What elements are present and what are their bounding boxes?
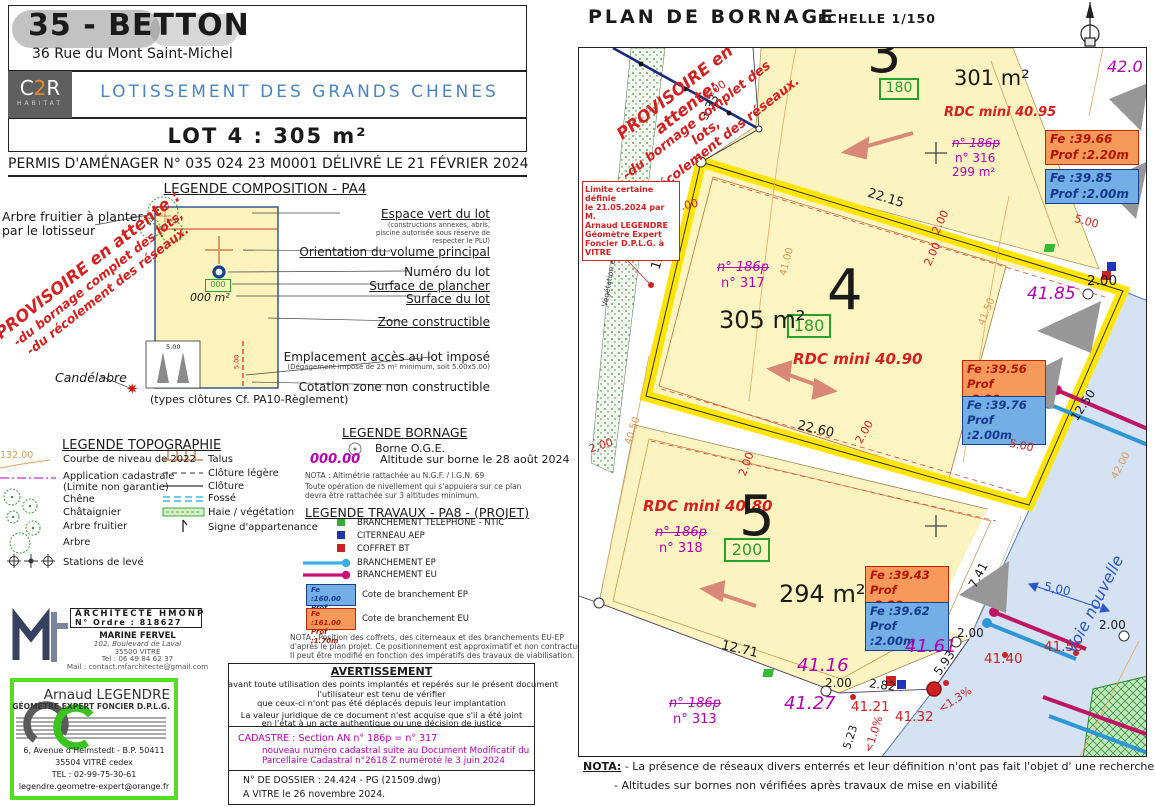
- travaux-aep: CITERNEAU AEP: [357, 531, 425, 541]
- city-title: 35 - BETTON: [28, 8, 250, 43]
- c2r-logo-2: 2: [34, 76, 47, 100]
- travaux-ep: BRANCHEMENT EP: [357, 558, 436, 568]
- fe-box-1-eu: Fe :39.66Prof :2.20m: [1045, 130, 1139, 165]
- alt-red-41-40: 41.40: [984, 652, 1023, 668]
- topo-cloture-legere: Clôture légère: [208, 468, 279, 480]
- c2r-logo-r: R: [46, 76, 60, 100]
- acces-dim-b: 5.00: [233, 355, 241, 369]
- limite-l2: le 21.05.2024 par M.: [585, 203, 677, 221]
- fe1-ep-l2: Prof :2.00m: [1050, 187, 1134, 203]
- lot5-new-parcel: n° 318: [659, 541, 703, 556]
- topo-signe: Signe d'appartenance: [208, 522, 318, 534]
- fe2-ep-l2: Prof :2.00m: [967, 413, 1041, 443]
- dim-200-borne-a: 2.00: [1087, 274, 1117, 290]
- topo-arbre-fruitier: Arbre fruitier: [63, 521, 127, 533]
- dim-200-borne-c: 2.00: [1099, 618, 1126, 632]
- lot4-old-parcel: n° 186p: [717, 260, 769, 275]
- cadastre-l2: nouveau numéro cadastral suite au Docume…: [262, 746, 529, 756]
- fe1-eu-l1: Fe :39.66: [1050, 132, 1134, 148]
- acces-dim-a: 5.00: [166, 344, 180, 352]
- travaux-eu: BRANCHEMENT EU: [357, 570, 437, 580]
- legend-numero: Numéro du lot: [404, 265, 490, 279]
- limite-l3: Arnaud LEGENDRE: [585, 221, 677, 230]
- plan-nota-1: - La présence de réseaux divers enterrés…: [625, 760, 1155, 773]
- limite-l4: Géomètre Expert: [585, 230, 677, 239]
- warning-title: AVERTISSEMENT: [228, 666, 535, 679]
- lot4-rdc: RDC mini 40.90: [793, 351, 923, 369]
- surveyor-mail: legendre.geometre-expert@orange.fr: [14, 782, 174, 791]
- lot4-number: 4: [827, 258, 863, 324]
- travaux-ntic: BRANCHEMENT TELEPHONE - NTIC: [357, 518, 504, 528]
- fe2-ep-l1: Fe :39.76: [967, 398, 1041, 413]
- fe3-eu-l1: Fe :39.43: [870, 568, 944, 583]
- surveyor-tel: TEL : 02-99-75-30-61: [14, 770, 174, 779]
- travaux-nota-3: Il peut être modifié en fonction des imp…: [290, 652, 574, 661]
- p313-old: n° 186p: [669, 696, 721, 711]
- plan-scale: ECHELLE 1/150: [818, 12, 936, 27]
- topo-arbre: Arbre: [63, 537, 90, 549]
- travaux-bt: COFFRET BT: [357, 544, 410, 554]
- lot3-area: 301 m²: [954, 66, 1030, 91]
- cadastre-l3: Parcellaire Cadastral n°2618 Z numéroté …: [262, 756, 505, 766]
- permit-line: PERMIS D'AMÉNAGER N° 035 024 23 M0001 DÉ…: [8, 156, 527, 177]
- p313-new: n° 313: [673, 712, 717, 727]
- topo-talus: Talus: [208, 454, 233, 466]
- fe-legend-eu-l1: Fe :161.00: [311, 610, 351, 628]
- sample-surface: 000 m²: [190, 292, 230, 305]
- lot5-number: 5: [739, 484, 775, 550]
- legend-topo-title: LEGENDE TOPOGRAPHIE: [62, 438, 221, 453]
- legend-espace-vert: Espace vert du lot: [381, 207, 490, 221]
- architect-logo: [16, 612, 68, 662]
- fe-legend-ep-label: Cote de branchement EP: [362, 590, 468, 600]
- site-address: 36 Rue du Mont Saint-Michel: [32, 46, 233, 63]
- tree-label-2: par le lotisseur: [2, 224, 95, 239]
- fe1-eu-l2: Prof :2.20m: [1050, 148, 1134, 164]
- legend-espace-note-2: piscine autorisée sous réserve de: [376, 229, 490, 237]
- fe-box-2-ep: Fe :39.76Prof :2.00m: [962, 396, 1046, 445]
- warning-divider-2: [228, 770, 535, 771]
- cadastre-l1: CADASTRE : Section AN n° 186p = n° 317: [238, 733, 437, 744]
- plan-de-bornage-sheet: 35 - BETTON 36 Rue du Mont Saint-Michel …: [0, 0, 1155, 807]
- bornage-nota-1: NOTA : Altimétrie rattachée au N.G.F. / …: [305, 472, 484, 481]
- alt-red-41-21: 41.21: [851, 700, 890, 716]
- legend-orientation: Orientation du volume principal: [299, 245, 490, 259]
- legend-espace-note-3: respecter le PLU): [432, 237, 490, 245]
- fe-legend-ep-l1: Fe :160.00: [311, 586, 351, 604]
- lot-title: LOT 4 : 305 m²: [8, 124, 527, 149]
- dossier-l2: A VITRE le 26 novembre 2024.: [243, 790, 385, 801]
- alt-41-85: 41.85: [1027, 284, 1076, 304]
- legend-espace-note-1: (constructions annexes, abris,: [388, 221, 490, 229]
- limite-l5: Foncier D.P.L.G. à: [585, 239, 677, 248]
- dim-200-borne-b: 2.00: [957, 626, 984, 640]
- lot5-area: 294 m²: [779, 580, 865, 608]
- topo-chataignier: Châtaignier: [63, 507, 121, 519]
- legend-zone-constructible: Zone constructible: [378, 315, 490, 329]
- warning-l3: que ceux-ci n'ont pas été déplacés depui…: [228, 699, 535, 709]
- topo-chene: Chêne: [63, 494, 95, 506]
- c2r-logo: C2R HABITAT: [8, 71, 72, 118]
- contour-sample: 132.00: [0, 450, 33, 461]
- lot4-area: 305 m²: [719, 306, 805, 334]
- alt-41-27: 41.27: [784, 693, 836, 714]
- limite-certaine-box: Limite certaine définie le 21.05.2024 pa…: [582, 181, 680, 261]
- lot5-old-parcel: n° 186p: [655, 525, 707, 540]
- dim-200-borne-d: 2.00: [825, 676, 852, 690]
- dossier-l1: N° DE DOSSIER : 24.424 - PG (21509.dwg): [243, 776, 441, 787]
- lot3-new-area: 299 m²: [952, 165, 995, 179]
- limite-l6: VITRE: [585, 248, 677, 257]
- alt-sample: 000.00: [310, 452, 360, 467]
- lot4-new-parcel: n° 317: [721, 276, 765, 291]
- types-clotures: (types clôtures Cf. PA10-Règlement): [150, 394, 348, 407]
- topo-cloture: Clôture: [208, 481, 244, 493]
- lot3-new-parcel: n° 316: [955, 151, 995, 165]
- plan-drawing-area: 3 180 301 m² RDC mini 40.95 n° 186p n° 3…: [578, 47, 1147, 757]
- topo-courbe: Courbe de niveau de 2022: [63, 454, 196, 466]
- alt-42-0: 42.0: [1107, 58, 1143, 77]
- topo-stations: Stations de levé: [63, 557, 144, 569]
- c2r-logo-c: C: [20, 76, 34, 100]
- topo-fosse: Fossé: [208, 493, 236, 505]
- plan-nota-2: - Altitudes sur bornes non vérifiées apr…: [614, 780, 998, 793]
- legend-emplacement-note: (Dégagement imposé de 25 m² minimum, soi…: [287, 363, 490, 371]
- fe2-eu-l1: Fe :39.56: [967, 362, 1041, 377]
- surveyor-addr1: 6, Avenue d'Helmstedt - B.P. 50411: [14, 746, 174, 755]
- architect-mail: Mail : contact.mfarchitecte@gmail.com: [40, 663, 235, 671]
- fe-legend-eu-box: Fe :161.00 Prof :1.70m: [306, 608, 356, 630]
- legend-bornage-title: LEGENDE BORNAGE: [342, 426, 467, 441]
- alt-label: Altitude sur borne le 28 août 2024: [380, 454, 570, 467]
- lot3-number: 3: [867, 47, 901, 86]
- alt-red-41-32: 41.32: [895, 710, 934, 726]
- topo-haie: Haie / végétation: [208, 507, 294, 519]
- plan-nota-title: NOTA:: [583, 760, 621, 773]
- fe-box-1-ep: Fe :39.85Prof :2.00m: [1045, 169, 1139, 204]
- plan-title: PLAN DE BORNAGE: [588, 6, 836, 28]
- surveyor-addr2: 35504 VITRÉ cedex: [14, 758, 174, 767]
- bornage-nota-3: devra être rattachée sur 3 altitudes min…: [305, 492, 479, 501]
- architect-order: N° Ordre : 818627: [75, 618, 182, 627]
- warning-l5: en l'état à un acte authentique ou une d…: [228, 719, 535, 729]
- surveyor-title: GÉOMÈTRE EXPERT FONCIER D.P.L.G.: [12, 703, 170, 712]
- lot3-rdc: RDC mini 40.95: [944, 105, 1056, 120]
- c2r-logo-sub: HABITAT: [8, 100, 72, 107]
- alt-41-16: 41.16: [797, 655, 849, 676]
- limite-l1: Limite certaine définie: [585, 185, 677, 203]
- north-arrow: [1081, 2, 1099, 46]
- candelabre-star-icon: ✷: [126, 381, 139, 399]
- topo-limite: (Limite non garantie): [63, 482, 169, 494]
- subdivision-name: LOTISSEMENT DES GRANDS CHENES: [72, 82, 527, 102]
- legend-surface-lot: Surface du lot: [406, 292, 490, 306]
- lot3-old-parcel: n° 186p: [952, 136, 1000, 150]
- fe1-ep-l1: Fe :39.85: [1050, 171, 1134, 187]
- fe-legend-ep-box: Fe :160.00 Prof :1.50m: [306, 584, 356, 606]
- fe-legend-eu-label: Cote de branchement EU: [362, 614, 469, 624]
- plan-nota-line1: NOTA: - La présence de réseaux divers en…: [583, 761, 1155, 774]
- legend-composition-title: LEGENDE COMPOSITION - PA4: [100, 182, 430, 198]
- candelabre-label: Candélabre: [55, 371, 127, 386]
- fe3-ep-l1: Fe :39.62: [870, 604, 944, 619]
